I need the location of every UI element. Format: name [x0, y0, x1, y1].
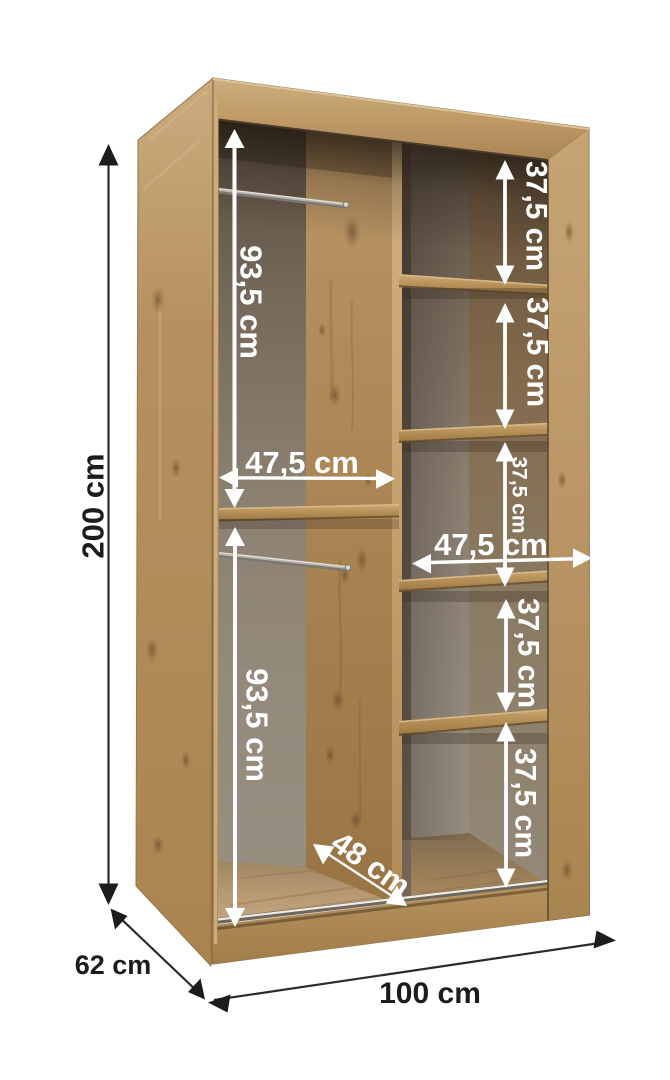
svg-text:47,5 cm: 47,5 cm	[434, 527, 548, 562]
svg-text:37,5 cm: 37,5 cm	[508, 456, 531, 533]
svg-text:37,5 cm: 37,5 cm	[520, 161, 553, 271]
svg-text:93,5 cm: 93,5 cm	[240, 668, 275, 782]
svg-text:37,5 cm: 37,5 cm	[521, 297, 554, 407]
svg-text:47,5 cm: 47,5 cm	[245, 445, 359, 480]
svg-text:62 cm: 62 cm	[75, 950, 152, 980]
svg-text:37,5 cm: 37,5 cm	[509, 748, 542, 858]
svg-text:37,5 cm: 37,5 cm	[512, 598, 545, 708]
svg-text:100 cm: 100 cm	[379, 977, 481, 1010]
svg-text:200 cm: 200 cm	[76, 453, 111, 558]
svg-text:93,5 cm: 93,5 cm	[234, 245, 269, 359]
